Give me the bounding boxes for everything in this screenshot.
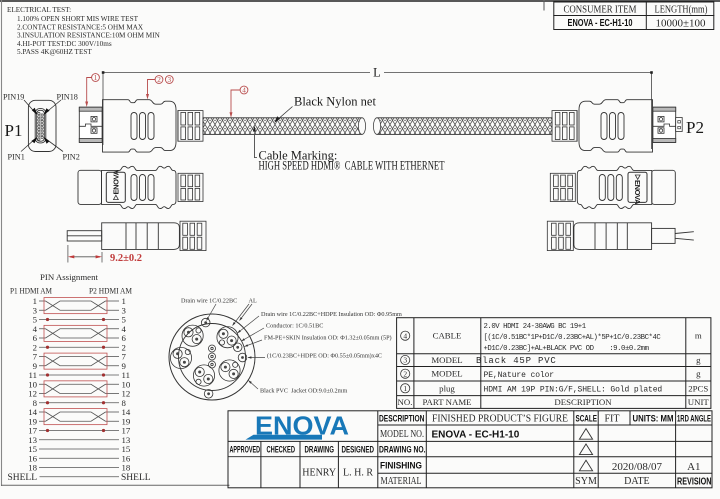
svg-text:SYM: SYM bbox=[575, 476, 597, 487]
svg-text:P2 HDMI AM: P2 HDMI AM bbox=[89, 286, 132, 296]
svg-text:SHELL: SHELL bbox=[7, 473, 37, 483]
svg-text:4: 4 bbox=[403, 331, 407, 340]
svg-text:(1C/0.23BC+HDPE OD: Φ0.55±0.05: (1C/0.23BC+HDPE OD: Φ0.55±0.05mm)x4C bbox=[267, 353, 382, 360]
svg-text:FINISHING: FINISHING bbox=[380, 460, 422, 471]
svg-text:g: g bbox=[696, 355, 701, 365]
svg-text:18: 18 bbox=[28, 463, 37, 473]
svg-text:1: 1 bbox=[94, 74, 98, 82]
svg-text:LENGTH(mm): LENGTH(mm) bbox=[655, 4, 708, 16]
svg-text:FINISHED PRODUCT’S FIGURE: FINISHED PRODUCT’S FIGURE bbox=[432, 414, 568, 425]
svg-text:PIN18: PIN18 bbox=[57, 93, 78, 102]
svg-text:L: L bbox=[373, 66, 381, 80]
svg-text:DRAWING NO.: DRAWING NO. bbox=[379, 445, 426, 456]
svg-text:DESIGNED: DESIGNED bbox=[342, 444, 375, 455]
svg-text:A1: A1 bbox=[687, 461, 700, 473]
svg-text:m: m bbox=[695, 331, 702, 341]
svg-text:REVISION: REVISION bbox=[677, 476, 712, 488]
svg-text:HIGH SPEED HDMI® CABLE WITH E: HIGH SPEED HDMI® CABLE WITH ETHERNET bbox=[259, 159, 445, 173]
svg-text:g: g bbox=[696, 369, 701, 379]
svg-text:PE,Nature color: PE,Nature color bbox=[484, 371, 555, 380]
svg-text:PIN Assignment: PIN Assignment bbox=[40, 272, 98, 282]
svg-text:CHECKED: CHECKED bbox=[267, 444, 296, 455]
svg-text:P1 HDMI AM: P1 HDMI AM bbox=[10, 286, 52, 296]
svg-text:2PCS: 2PCS bbox=[688, 383, 708, 393]
svg-text:P2: P2 bbox=[686, 118, 704, 137]
svg-text:4.HI-POT TEST:DC 300V/10ms: 4.HI-POT TEST:DC 300V/10ms bbox=[17, 40, 112, 48]
svg-text:FIT: FIT bbox=[605, 413, 620, 424]
svg-text:1RD ANGLE: 1RD ANGLE bbox=[677, 413, 711, 424]
svg-text:PIN1: PIN1 bbox=[8, 153, 25, 162]
svg-text:HENRY: HENRY bbox=[302, 468, 336, 479]
svg-text:5.PASS 4K@60HZ TEST: 5.PASS 4K@60HZ TEST bbox=[17, 48, 92, 56]
svg-text:1: 1 bbox=[403, 384, 407, 393]
svg-text:ENOVA - EC-H1-10: ENOVA - EC-H1-10 bbox=[568, 18, 633, 29]
svg-text:MODEL NO.: MODEL NO. bbox=[380, 429, 424, 440]
svg-text:NO.: NO. bbox=[398, 397, 413, 407]
svg-text:3: 3 bbox=[403, 356, 407, 365]
svg-text:Black PVC Jacket OD:9.0±0.2mm: Black PVC Jacket OD:9.0±0.2mm bbox=[260, 388, 347, 395]
svg-text:1.100% OPEN SHORT MIS WIRE TES: 1.100% OPEN SHORT MIS WIRE TEST bbox=[17, 15, 139, 23]
svg-text:MODEL: MODEL bbox=[431, 369, 462, 379]
svg-text:9.2±0.2: 9.2±0.2 bbox=[110, 253, 142, 264]
svg-text:4: 4 bbox=[242, 87, 246, 95]
svg-text:2.0V HDMI 24-30AWG BC 19+1: 2.0V HDMI 24-30AWG BC 19+1 bbox=[484, 323, 587, 331]
svg-text:Drain wire 1C/0.22BC: Drain wire 1C/0.22BC bbox=[181, 298, 237, 305]
svg-text:AL: AL bbox=[249, 298, 257, 305]
svg-text:FM-PE+SKIN Insulation OD: Φ1.3: FM-PE+SKIN Insulation OD: Φ1.32±0.05mm (… bbox=[264, 335, 392, 342]
svg-text:18: 18 bbox=[122, 463, 131, 473]
svg-text:CONSUMER ITEM: CONSUMER ITEM bbox=[564, 4, 637, 16]
svg-text:SHELL: SHELL bbox=[121, 473, 151, 483]
svg-text:+D1C/0.23BC]+AL+BLACK PVC OD: +D1C/0.23BC]+AL+BLACK PVC OD :9.0±0.2mm bbox=[484, 345, 649, 353]
svg-text:10000±100: 10000±100 bbox=[655, 17, 706, 29]
svg-text:PART NAME: PART NAME bbox=[422, 397, 471, 407]
svg-text:Black 45P PVC: Black 45P PVC bbox=[476, 356, 557, 366]
svg-text:ENOVA: ENOVA bbox=[633, 180, 642, 205]
svg-text:2: 2 bbox=[157, 76, 161, 84]
svg-text:P1: P1 bbox=[5, 121, 23, 140]
svg-text:Black Nylon net: Black Nylon net bbox=[294, 95, 376, 109]
svg-text:UNITS: MM: UNITS: MM bbox=[633, 413, 674, 424]
svg-text:DRAWING: DRAWING bbox=[305, 444, 335, 455]
svg-text:2.CONTACT RESISTANCE:5 OHM MAX: 2.CONTACT RESISTANCE:5 OHM MAX bbox=[17, 23, 144, 31]
svg-text:SCALE: SCALE bbox=[576, 413, 598, 424]
svg-text:PIN19: PIN19 bbox=[3, 93, 24, 102]
svg-text:ENOVA - EC-H1-10: ENOVA - EC-H1-10 bbox=[432, 429, 520, 440]
svg-text:APPROVED: APPROVED bbox=[230, 444, 261, 455]
svg-text:CABLE: CABLE bbox=[433, 331, 462, 341]
svg-text:2: 2 bbox=[403, 369, 407, 378]
svg-text:PIN2: PIN2 bbox=[63, 153, 80, 162]
svg-text:plug: plug bbox=[439, 383, 455, 393]
svg-text:Drain wire 1C/0.22BC+HDPE Insu: Drain wire 1C/0.22BC+HDPE Insulation OD:… bbox=[261, 311, 402, 318]
svg-text:2020/08/07: 2020/08/07 bbox=[612, 461, 663, 473]
svg-text:L. H. R: L. H. R bbox=[343, 468, 373, 479]
svg-text:3.INSULATION RESISTANCE:10M OH: 3.INSULATION RESISTANCE:10M OHM MIN bbox=[17, 32, 161, 40]
svg-text:ENOVA: ENOVA bbox=[111, 169, 120, 194]
svg-text:UNIT: UNIT bbox=[688, 397, 710, 407]
svg-text:MATERIAL: MATERIAL bbox=[381, 476, 422, 487]
svg-text:3: 3 bbox=[168, 76, 172, 84]
svg-text:ELECTRICAL TEST:: ELECTRICAL TEST: bbox=[7, 6, 71, 14]
svg-text:DESCRIPTION: DESCRIPTION bbox=[554, 397, 612, 407]
svg-text:Conductor: 1C/0.51BC: Conductor: 1C/0.51BC bbox=[266, 323, 323, 330]
svg-text:MODEL: MODEL bbox=[431, 355, 462, 365]
svg-text:[(1C/0.51BC*1P+D1C/0.23BC+AL)*: [(1C/0.51BC*1P+D1C/0.23BC+AL)*5P+1C/0.23… bbox=[484, 334, 662, 342]
svg-text:DESCRIPTION: DESCRIPTION bbox=[379, 413, 425, 424]
svg-text:HDMI AM 19P PIN:G/F,SHELL: Gol: HDMI AM 19P PIN:G/F,SHELL: Gold plated bbox=[484, 386, 663, 395]
svg-text:DATE: DATE bbox=[624, 476, 650, 487]
